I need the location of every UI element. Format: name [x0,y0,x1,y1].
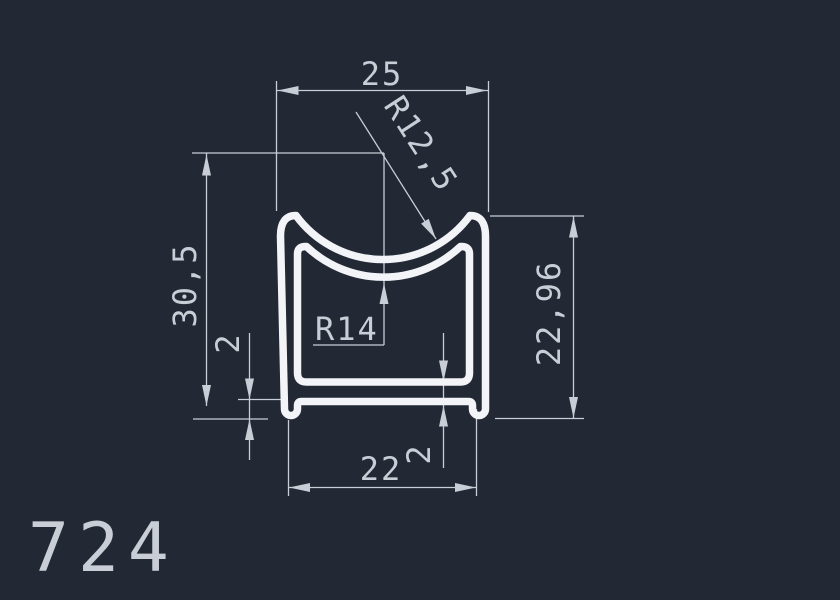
label-foot-height: 2 [209,332,247,353]
arrow-305-bottom [202,385,211,406]
label-inner-radius: R14 [315,310,379,348]
label-left-height: 30,5 [166,242,204,327]
cad-drawing-canvas: 25 R12,5 30,5 R14 2 22,96 22 2 724 [0,0,840,600]
label-top-width: 25 [361,55,404,93]
arrow-22-right [455,483,476,492]
label-outer-radius: R12,5 [376,89,466,199]
arrow-r14-up [380,283,389,304]
dimension-arrows [202,86,578,492]
label-right-height: 22,96 [530,260,568,366]
arrow-25-right [466,86,487,95]
arrow-2-right-up [439,406,448,427]
arrow-2296-bottom [569,397,578,418]
arrow-305-top [202,155,211,176]
profile-geometry [281,216,486,416]
profile-number-label: 724 [28,509,178,588]
arrow-2296-top [569,217,578,238]
technical-drawing: 25 R12,5 30,5 R14 2 22,96 22 2 724 [0,0,840,600]
label-bottom-wall-thickness: 2 [400,443,438,464]
label-bottom-width: 22 [360,450,403,488]
arrow-25-left [278,86,299,95]
arrow-2-left-down [245,379,254,400]
arrow-2-left-up [245,419,254,440]
arrow-r125 [421,219,436,239]
arrow-22-left [289,483,310,492]
